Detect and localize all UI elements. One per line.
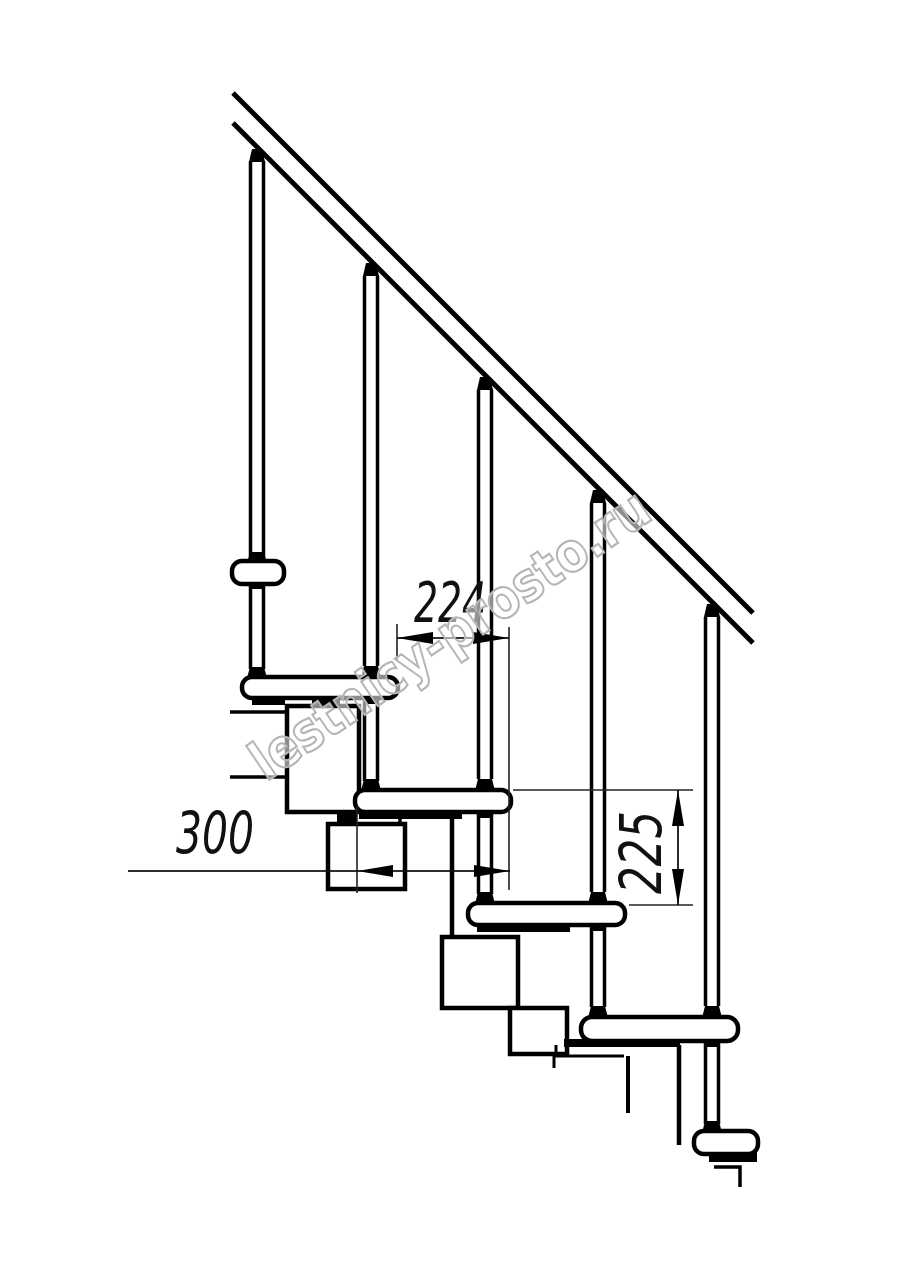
dim225-label: 225	[607, 811, 675, 894]
b2-foot	[361, 779, 381, 791]
tread-4	[581, 1017, 738, 1041]
b3-mark	[477, 813, 493, 818]
b1-foot	[247, 667, 267, 678]
module-bracket-5	[714, 1167, 740, 1187]
b3-foot	[475, 892, 495, 904]
clamp-t1a	[252, 696, 285, 705]
clamp-t5	[709, 1152, 757, 1162]
tread-5	[694, 1131, 758, 1154]
b4-mark	[590, 926, 606, 931]
staircase-drawing-page: 224 300 225 lestnicy-prosto.ru	[0, 0, 914, 1280]
stringer-module-3b	[510, 1008, 567, 1054]
stringer-module-2	[328, 824, 405, 889]
staircase-drawing: 224 300 225 lestnicy-prosto.ru	[0, 0, 914, 1280]
module-connector-1	[337, 811, 357, 823]
b5-foot	[702, 1121, 722, 1133]
tread-3	[468, 903, 625, 925]
clamp-t3	[477, 923, 570, 932]
tread-2	[355, 790, 511, 812]
clamp-t2	[359, 810, 462, 819]
b1-collar	[247, 552, 267, 563]
baluster-5	[706, 617, 719, 1124]
b1-mark	[249, 584, 265, 589]
baluster-4	[592, 503, 605, 1007]
b4-collar	[588, 892, 608, 904]
tread-end-view	[232, 561, 284, 584]
baluster-1	[251, 161, 264, 669]
b5-collar	[702, 1006, 722, 1018]
b5-mark	[704, 1042, 720, 1047]
b3-collar	[475, 779, 495, 791]
b4-foot	[588, 1006, 608, 1018]
clamp-t4	[564, 1039, 680, 1047]
dim300-label: 300	[176, 799, 254, 867]
stringer-module-3	[442, 937, 518, 1008]
